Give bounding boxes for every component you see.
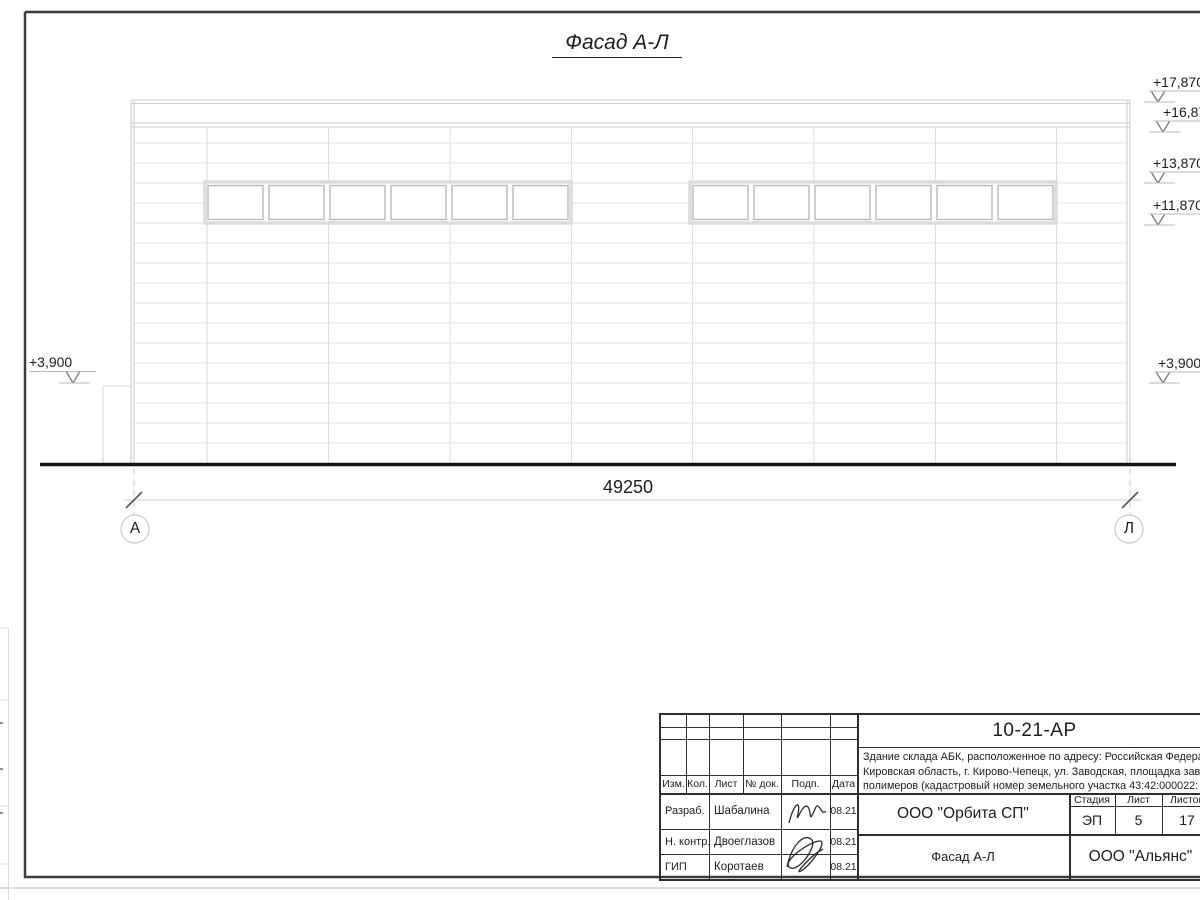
- axis-bubble-a: А: [120, 514, 150, 544]
- project-description-line2: Кировская область, г. Кирово-Чепецк, ул.…: [863, 765, 1200, 780]
- stage-value: ЭП: [1069, 806, 1115, 834]
- sheet-label: Лист: [1115, 793, 1162, 806]
- design-org: ООО "Орбита СП": [857, 793, 1069, 834]
- project-description-line3: полимеров (кадастровый номер земельного …: [863, 779, 1200, 794]
- client-org: ООО "Альянс": [1069, 834, 1200, 879]
- signature-scribble-1: [789, 805, 826, 823]
- axis-bubble-l: Л: [1114, 514, 1144, 544]
- elevation-mark-right-16870: +16,870: [1163, 104, 1200, 120]
- elevation-mark-right-3900: +3,900: [1158, 355, 1200, 371]
- title-block: Изм. Кол. Лист № док. Подп. Дата Разраб.…: [659, 713, 1200, 881]
- elevation-mark-right-13870: +13,870: [1153, 155, 1200, 171]
- sheets-value: 17: [1162, 806, 1200, 834]
- stage-label: Стадия: [1069, 793, 1115, 806]
- elevation-mark-right-11870: +11,870: [1153, 197, 1200, 213]
- signature-scribble-2: [787, 838, 823, 872]
- adjacent-sheet-fragment: [0, 628, 9, 900]
- sheets-label: Листов: [1162, 793, 1200, 806]
- elevation-mark-right-17870: +17,870: [1153, 74, 1200, 90]
- elevation-mark-left-3900: +3,900: [29, 354, 72, 370]
- drawing-sheet: Фасад А-Л +17,870 +16,870 +13,870 +11,87…: [0, 0, 1200, 900]
- annex-outline: [103, 386, 131, 464]
- page-title: Фасад А-Л: [552, 31, 682, 58]
- dimension-total: 49250: [593, 477, 663, 498]
- sheet-value: 5: [1115, 806, 1162, 834]
- project-description-line1: Здание склада АБК, расположенное по адре…: [863, 750, 1200, 765]
- drawing-name: Фасад А-Л: [857, 834, 1069, 879]
- doc-code: 10-21-АР: [857, 715, 1200, 747]
- project-description: Здание склада АБК, расположенное по адре…: [863, 750, 1200, 794]
